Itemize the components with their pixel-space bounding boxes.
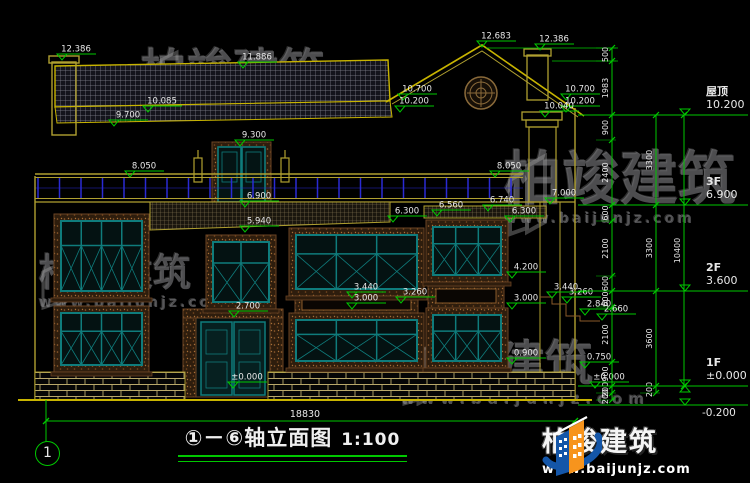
rose-window: [465, 77, 497, 109]
svg-text:2F: 2F: [706, 261, 721, 274]
svg-text:0.900: 0.900: [514, 349, 538, 359]
svg-text:900: 900: [601, 366, 610, 381]
window-2f-left: [51, 214, 152, 302]
title-name: 轴立面图: [244, 426, 332, 450]
svg-text:500: 500: [601, 47, 610, 62]
svg-text:12.386: 12.386: [539, 35, 569, 45]
svg-text:3.000: 3.000: [514, 294, 538, 304]
svg-text:屋顶: 屋顶: [706, 85, 728, 98]
svg-text:3600: 3600: [645, 328, 654, 348]
axis-bubble-1: 1: [35, 441, 60, 466]
dimension-chain: 10400: [668, 112, 688, 389]
elevation-linework: 18830 12.38611.88610.0859.7009.30012.683…: [0, 0, 750, 483]
svg-text:2100: 2100: [601, 324, 610, 344]
window-1f-right: [423, 308, 511, 372]
svg-text:1F: 1F: [706, 356, 721, 369]
svg-text:3300: 3300: [645, 150, 654, 170]
svg-text:200: 200: [645, 382, 654, 397]
svg-text:12.386: 12.386: [61, 45, 91, 55]
svg-text:600: 600: [601, 205, 610, 220]
svg-text:3.260: 3.260: [403, 288, 427, 298]
elevation-marker: 10.040: [540, 102, 579, 118]
svg-text:10.200: 10.200: [706, 98, 745, 111]
svg-text:3.260: 3.260: [569, 288, 593, 298]
svg-text:11.886: 11.886: [242, 53, 272, 63]
svg-text:8.050: 8.050: [497, 162, 521, 172]
brand-logo: 柏竣建筑 www.baijunjz.com: [538, 414, 750, 482]
window-1f-left: [51, 306, 152, 376]
svg-text:±0.000: ±0.000: [706, 369, 747, 382]
svg-text:2100: 2100: [601, 238, 610, 258]
window-2f-right: [423, 220, 511, 286]
svg-text:6.560: 6.560: [439, 201, 463, 211]
title-scale: 1:100: [341, 430, 400, 450]
svg-text:12.683: 12.683: [481, 32, 511, 42]
svg-text:600: 600: [601, 276, 610, 291]
svg-text:6.900: 6.900: [247, 192, 271, 202]
brand-logo-icon: [538, 414, 602, 480]
svg-text:900: 900: [601, 120, 610, 135]
svg-text:7.000: 7.000: [552, 189, 576, 199]
svg-text:6.900: 6.900: [706, 188, 738, 201]
svg-text:3.440: 3.440: [354, 283, 378, 293]
title-underline: [178, 455, 407, 462]
svg-text:1983: 1983: [601, 78, 610, 98]
svg-text:10.700: 10.700: [402, 85, 432, 95]
svg-text:6.300: 6.300: [512, 207, 536, 217]
svg-text:600: 600: [601, 291, 610, 306]
total-width-dim: 18830: [290, 409, 320, 420]
svg-text:10400: 10400: [673, 238, 682, 263]
svg-text:2.700: 2.700: [236, 302, 260, 312]
svg-text:5.940: 5.940: [247, 217, 271, 227]
svg-text:200: 200: [601, 389, 610, 404]
elevation-marker: 12.386: [57, 45, 96, 61]
chimney-right-flue: [524, 49, 551, 100]
cad-elevation-drawing: 柏竣建筑 www.baijunjz.com 柏竣建筑 www.baijunjz.…: [0, 0, 750, 483]
svg-text:0.750: 0.750: [587, 353, 611, 363]
svg-text:10.700: 10.700: [565, 85, 595, 95]
dimension-chain: 330033003600200: [640, 112, 660, 397]
svg-text:3.600: 3.600: [706, 274, 738, 287]
roof-hatch: [55, 60, 392, 123]
spandrel-right: [428, 284, 504, 308]
drawing-title-block: ①－⑥轴立面图1:100: [170, 422, 415, 462]
elevation-marker: 10.200: [395, 97, 434, 113]
svg-text:3300: 3300: [645, 238, 654, 258]
terrace-railing: [35, 174, 523, 199]
svg-text:9.700: 9.700: [116, 111, 140, 121]
extension-lines: [486, 48, 618, 61]
svg-text:10.040: 10.040: [544, 102, 574, 112]
elevation-marker: 6.300: [388, 207, 427, 223]
svg-text:±0.000: ±0.000: [231, 373, 262, 383]
svg-text:3F: 3F: [706, 175, 721, 188]
svg-text:6.740: 6.740: [490, 196, 514, 206]
svg-text:6.300: 6.300: [395, 207, 419, 217]
svg-text:3.000: 3.000: [354, 294, 378, 304]
svg-text:2400: 2400: [601, 162, 610, 182]
svg-text:4.200: 4.200: [514, 263, 538, 273]
title-axes: ①－⑥: [185, 426, 245, 450]
svg-text:10.200: 10.200: [399, 97, 429, 107]
svg-text:10.085: 10.085: [147, 97, 177, 107]
svg-text:8.050: 8.050: [132, 162, 156, 172]
svg-text:9.300: 9.300: [242, 131, 266, 141]
dimension-chain: 5001983900240060021006006002100900200200: [596, 45, 616, 404]
window-1f-mid: [286, 313, 427, 372]
